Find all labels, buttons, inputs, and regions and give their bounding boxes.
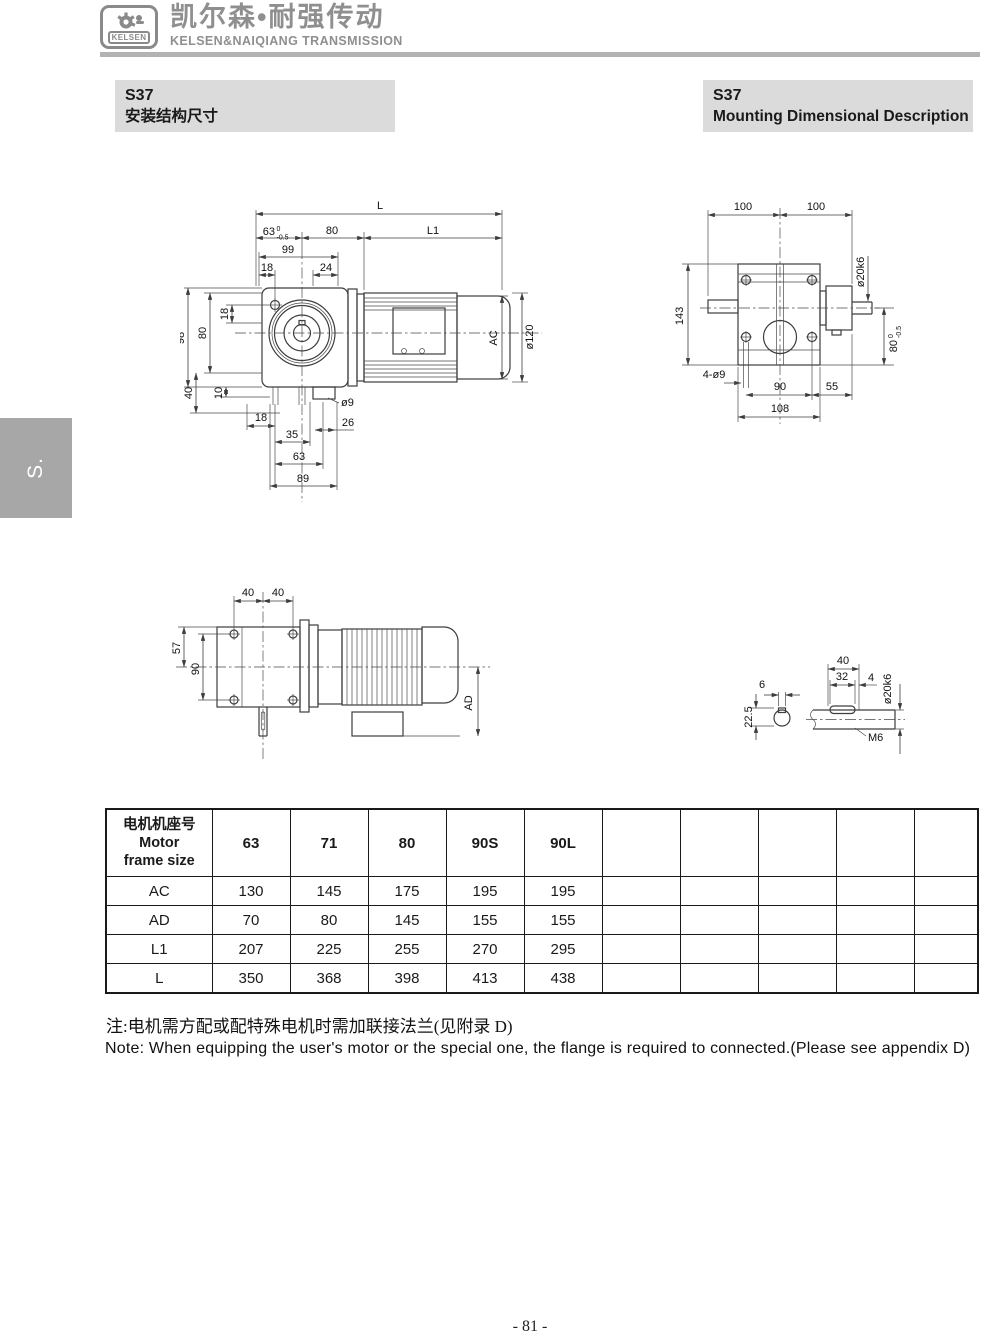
empty-cell xyxy=(914,809,978,877)
dim-label-18-bottom: 18 xyxy=(255,412,267,424)
empty-cell xyxy=(758,877,836,906)
header-divider xyxy=(100,52,980,57)
page-number: - 81 - xyxy=(470,1318,590,1336)
cell: 398 xyxy=(368,964,446,994)
svg-text:63: 63 xyxy=(263,226,275,238)
empty-cell xyxy=(680,906,758,935)
frame-size-header-cell: 电机机座号 Motor frame size xyxy=(106,809,212,877)
dim-label-M6: M6 xyxy=(868,732,883,744)
empty-cell xyxy=(836,935,914,964)
gearbox-outline xyxy=(262,288,348,405)
cell: 70 xyxy=(212,906,290,935)
empty-cell xyxy=(836,906,914,935)
empty-cell xyxy=(914,935,978,964)
title-block-cn: S37 安装结构尺寸 xyxy=(115,80,395,132)
frame-size-71: 71 xyxy=(290,809,368,877)
brand-name-english: KELSEN&NAIQIANG TRANSMISSION xyxy=(170,35,403,48)
dim-label-98: 98 xyxy=(180,332,187,344)
dim-label-108: 108 xyxy=(771,403,789,415)
cell: 350 xyxy=(212,964,290,994)
motor-dimension-table: 电机机座号 Motor frame size 63 71 80 90S 90L … xyxy=(105,808,979,994)
empty-cell xyxy=(680,964,758,994)
rear-centerlines xyxy=(700,208,880,424)
dim-label-L: L xyxy=(377,200,383,212)
frame-size-80: 80 xyxy=(368,809,446,877)
dim-label-dia20k6-rear: ø20k6 xyxy=(855,257,867,288)
cell: 438 xyxy=(524,964,602,994)
logo-badge-text: KELSEN xyxy=(108,31,151,44)
cell: 255 xyxy=(368,935,446,964)
svg-text:-0.5: -0.5 xyxy=(896,326,903,338)
dim-label-80-top: 80 xyxy=(326,225,338,237)
dim-label-63-tol: 63 0 -0.5 xyxy=(263,226,289,242)
cell: 207 xyxy=(212,935,290,964)
frame-size-90S: 90S xyxy=(446,809,524,877)
cell: 195 xyxy=(524,877,602,906)
dim-label-100-left: 100 xyxy=(734,201,752,213)
dim-label-dia20k6-shaft: ø20k6 xyxy=(882,674,894,705)
table-row-AD: AD 70 80 145 155 155 xyxy=(106,906,978,935)
cell: 145 xyxy=(290,877,368,906)
cell: 295 xyxy=(524,935,602,964)
dim-label-4-dia9: 4-ø9 xyxy=(703,369,726,381)
row-label: AD xyxy=(106,906,212,935)
empty-cell xyxy=(914,877,978,906)
motor-outline xyxy=(348,289,510,386)
empty-cell xyxy=(914,906,978,935)
dim-label-80-tol: 80 0 -0.5 xyxy=(888,326,903,352)
cell: 155 xyxy=(446,906,524,935)
dim-label-35: 35 xyxy=(286,429,298,441)
dim-label-26: 26 xyxy=(342,417,354,429)
dim-label-80-left: 80 xyxy=(197,327,209,339)
empty-cell xyxy=(680,935,758,964)
dim-label-99: 99 xyxy=(282,244,294,256)
model-code-cn: S37 xyxy=(125,85,395,106)
title-subtitle-cn: 安装结构尺寸 xyxy=(125,106,395,128)
row-label: L xyxy=(106,964,212,994)
dim-label-143: 143 xyxy=(674,307,686,325)
row-label: L1 xyxy=(106,935,212,964)
dim-label-90-rear: 90 xyxy=(774,381,786,393)
cell: 130 xyxy=(212,877,290,906)
dim-label-40-left-side: 40 xyxy=(242,587,254,599)
dim-label-32: 32 xyxy=(836,671,848,683)
side-view-drawing: 40 40 57 90 AD xyxy=(160,572,510,772)
kelsen-logo: KELSEN xyxy=(100,5,158,49)
table-header-row: 电机机座号 Motor frame size 63 71 80 90S 90L xyxy=(106,809,978,877)
empty-cell xyxy=(680,809,758,877)
dim-label-10: 10 xyxy=(213,387,225,399)
brand-block: 凯尔森•耐强传动 KELSEN&NAIQIANG TRANSMISSION xyxy=(170,4,403,48)
svg-text:0: 0 xyxy=(277,226,281,233)
brand-name-chinese: 凯尔森•耐强传动 xyxy=(170,4,403,31)
dim-label-100-right: 100 xyxy=(807,201,825,213)
empty-cell xyxy=(602,877,680,906)
cell: 368 xyxy=(290,964,368,994)
dim-label-22-5: 22.5 xyxy=(743,706,755,727)
section-index-tab: S. xyxy=(0,418,72,518)
table-row-L: L 350 368 398 413 438 xyxy=(106,964,978,994)
empty-cell xyxy=(602,935,680,964)
empty-cell xyxy=(836,964,914,994)
dim-label-18-left: 18 xyxy=(219,308,231,320)
shaft-side: 40 32 4 ø20k6 M6 xyxy=(806,655,905,754)
svg-text:0: 0 xyxy=(888,334,895,338)
dim-label-6: 6 xyxy=(759,679,765,691)
cell: 413 xyxy=(446,964,524,994)
header-cn: 电机机座号 xyxy=(107,816,212,834)
bolt-holes xyxy=(740,274,818,343)
cell: 225 xyxy=(290,935,368,964)
empty-cell xyxy=(758,935,836,964)
empty-cell xyxy=(758,964,836,994)
empty-cell xyxy=(602,809,680,877)
svg-text:80: 80 xyxy=(888,340,900,352)
dim-label-4: 4 xyxy=(868,672,874,684)
model-code-en: S37 xyxy=(713,85,973,106)
dim-label-55: 55 xyxy=(826,381,838,393)
dim-label-57: 57 xyxy=(171,642,183,654)
shaft-detail-drawing: 6 22.5 40 32 4 ø20k6 M6 xyxy=(728,632,968,772)
cell: 155 xyxy=(524,906,602,935)
cell: 80 xyxy=(290,906,368,935)
dim-label-40-right-side: 40 xyxy=(272,587,284,599)
empty-cell xyxy=(680,877,758,906)
dim-label-90-side: 90 xyxy=(190,663,202,675)
dim-label-40-left: 40 xyxy=(183,387,195,399)
rear-view-drawing: 100 100 143 ø20k6 80 0 -0.5 4-ø9 90 55 xyxy=(668,192,978,432)
svg-text:-0.5: -0.5 xyxy=(277,235,289,242)
empty-cell xyxy=(758,809,836,877)
dim-label-63-bottom: 63 xyxy=(293,451,305,463)
dim-label-L1: L1 xyxy=(427,225,439,237)
dim-label-dia120: ø120 xyxy=(524,324,536,349)
note-english: Note: When equipping the user's motor or… xyxy=(105,1040,970,1058)
header-en-1: Motor xyxy=(107,834,212,852)
table-row-L1: L1 207 225 255 270 295 xyxy=(106,935,978,964)
cell: 195 xyxy=(446,877,524,906)
cell: 270 xyxy=(446,935,524,964)
cell: 145 xyxy=(368,906,446,935)
dim-label-24: 24 xyxy=(320,262,332,274)
dim-label-AC: AC xyxy=(488,330,500,345)
empty-cell xyxy=(914,964,978,994)
catalog-page: KELSEN 凯尔森•耐强传动 KELSEN&NAIQIANG TRANSMIS… xyxy=(0,0,1000,1341)
dim-label-18-top: 18 xyxy=(261,262,273,274)
empty-cell xyxy=(836,809,914,877)
empty-cell xyxy=(758,906,836,935)
frame-size-90L: 90L xyxy=(524,809,602,877)
note-chinese: 注:电机需方配或配特殊电机时需加联接法兰(见附录 D) xyxy=(106,1012,513,1037)
frame-size-63: 63 xyxy=(212,809,290,877)
empty-cell xyxy=(836,877,914,906)
section-tab-label: S. xyxy=(24,457,48,479)
cell: 175 xyxy=(368,877,446,906)
empty-cell xyxy=(602,964,680,994)
side-centerlines xyxy=(176,592,490,762)
rear-outline xyxy=(708,264,872,365)
dim-label-89: 89 xyxy=(297,473,309,485)
dim-label-AD: AD xyxy=(463,695,475,710)
dim-label-40-shaft: 40 xyxy=(837,655,849,667)
dim-label-dia9: ø9 xyxy=(341,397,354,409)
gear-icon xyxy=(111,11,147,31)
empty-cell xyxy=(602,906,680,935)
row-label: AC xyxy=(106,877,212,906)
header-en-2: frame size xyxy=(107,852,212,870)
key-section: 6 22.5 xyxy=(743,679,800,740)
side-outline xyxy=(217,620,460,736)
front-view-drawing: L 63 0 -0.5 80 L1 99 18 24 98 xyxy=(180,190,560,520)
table-row-AC: AC 130 145 175 195 195 xyxy=(106,877,978,906)
title-block-en: S37 Mounting Dimensional Description xyxy=(703,80,973,132)
title-subtitle-en: Mounting Dimensional Description xyxy=(713,106,973,128)
front-dimensions: L 63 0 -0.5 80 L1 99 18 24 98 xyxy=(180,200,536,490)
